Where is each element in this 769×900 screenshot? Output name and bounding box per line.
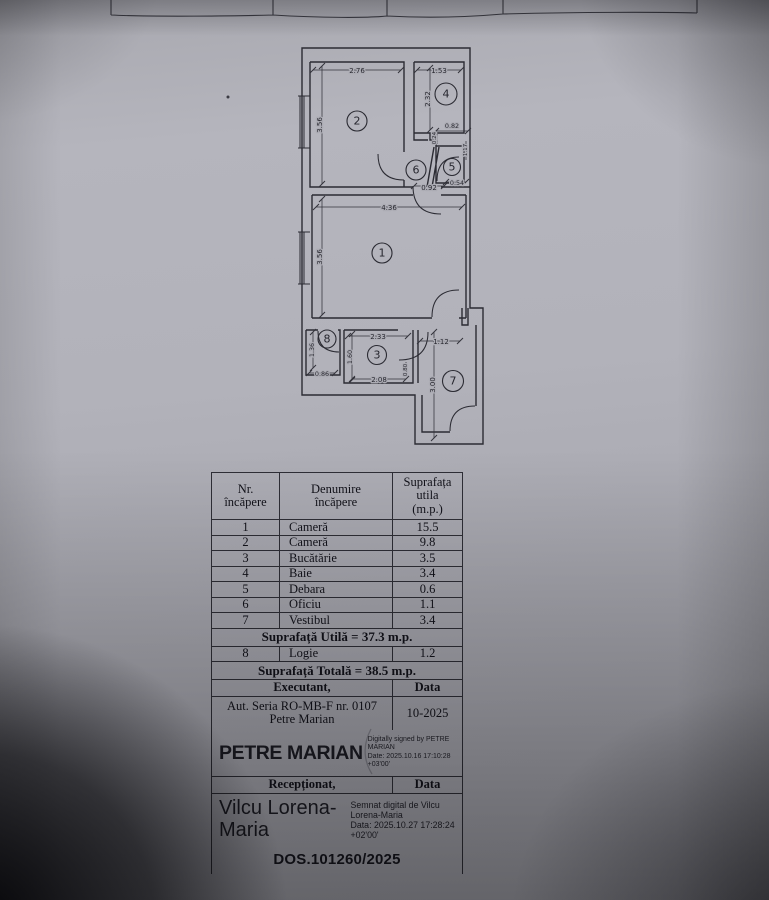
data-label: Data	[393, 777, 463, 794]
dim-label: 1.17	[463, 143, 469, 156]
header-text: utila	[416, 488, 438, 502]
table-row: 7 Vestibul 3.4	[212, 613, 463, 629]
room-number: 5	[449, 161, 456, 174]
dimension-ticks	[306, 63, 471, 441]
cell-nr: 7	[212, 613, 280, 629]
room-number: 6	[413, 164, 420, 177]
cell-name: Logie	[280, 646, 393, 662]
dim-label: 0.24	[432, 131, 438, 144]
dim-label: 2.76	[349, 67, 365, 75]
dim-label: 3.00	[429, 377, 437, 393]
total-totala: Suprafață Totală = 38.5 m.p.	[212, 662, 463, 680]
cell-name: Cameră	[280, 535, 393, 551]
room-number: 8	[324, 333, 331, 346]
table-row: 1 Cameră 15.5	[212, 520, 463, 536]
cell-name: Cameră	[280, 520, 393, 536]
header-nr: Nr. încăpere	[212, 473, 280, 520]
receptionat-signature-cell: Vilcu Lorena- Maria Semnat digital de Vi…	[212, 794, 463, 846]
executant-label: Executant,	[212, 680, 393, 697]
dim-label: 2.32	[424, 91, 432, 107]
header-text: încăpere	[224, 495, 266, 509]
cell-nr: 1	[212, 520, 280, 536]
surface-table: Nr. încăpere Denumire încăpere Suprafața…	[211, 472, 463, 874]
signature-detail-line: Digitally signed by PETRE MARIAN	[368, 736, 450, 752]
dimension-labels: 2.76 1.53 3.56 2.32 0.82 0.24 1.17 0.54 …	[308, 67, 469, 393]
scanned-document-photo: 2.76 1.53 3.56 2.32 0.82 0.24 1.17 0.54 …	[0, 0, 769, 900]
dim-label: 3.56	[316, 249, 324, 265]
door-arcs	[318, 154, 475, 431]
dim-label: 4.36	[381, 204, 397, 212]
cell-name: Vestibul	[280, 613, 393, 629]
plan-walls	[302, 48, 483, 444]
signature-detail-line: Semnat digital de Vilcu	[350, 800, 439, 810]
data-label: Data	[393, 680, 463, 697]
cell-area: 3.4	[393, 613, 463, 629]
cell-nr: 3	[212, 551, 280, 567]
cell-area: 0.6	[393, 582, 463, 598]
signature-detail-line: Lorena-Maria	[350, 810, 402, 820]
room-number: 7	[450, 375, 457, 388]
dossier-cell: DOS.101260/2025	[212, 846, 463, 874]
cell-nr: 6	[212, 597, 280, 613]
header-text: (m.p.)	[412, 502, 443, 516]
executant-header-row: Executant, Data	[212, 680, 463, 697]
dossier-number: DOS.101260/2025	[273, 851, 400, 868]
table-row: 6 Oficiu 1.1	[212, 597, 463, 613]
dim-label: 1.53	[431, 67, 447, 75]
executant-authorization: Aut. Seria RO-MB-F nr. 0107 Petre Marian	[212, 697, 393, 730]
dim-label: 1.36	[308, 343, 316, 357]
cell-nr: 8	[212, 646, 280, 662]
signature-detail-line: Date: 2025.10.16 17:10:28 +03'00'	[368, 753, 451, 769]
header-text: Denumire	[311, 482, 361, 496]
room-label-3: 3	[368, 346, 387, 365]
room-label-7: 7	[443, 371, 464, 392]
receptionat-header-row: Recepționat, Data	[212, 777, 463, 794]
ink-speck	[227, 96, 230, 99]
dim-label: 0.82	[445, 122, 459, 130]
room-label-8: 8	[318, 330, 336, 348]
dim-label: 0.86	[315, 370, 329, 378]
executant-date: 10-2025	[393, 697, 463, 730]
table-row: 8 Logie 1.2	[212, 646, 463, 662]
dim-label: 2.08	[371, 376, 387, 384]
room-label-1: 1	[372, 243, 392, 263]
table-row: 5 Debara 0.6	[212, 582, 463, 598]
receptionat-signature-row: Vilcu Lorena- Maria Semnat digital de Vi…	[212, 794, 463, 846]
executant-signature-row: PETRE MARIAN Digitally signed by PETRE M…	[212, 730, 463, 777]
digital-signature-name: PETRE MARIAN	[219, 743, 363, 763]
cell-name: Baie	[280, 566, 393, 582]
cell-area: 15.5	[393, 520, 463, 536]
table-row: 4 Baie 3.4	[212, 566, 463, 582]
header-denumire: Denumire încăpere	[280, 473, 393, 520]
room-label-5: 5	[444, 159, 461, 176]
dim-label: 1.12	[433, 338, 449, 346]
cell-area: 1.2	[393, 646, 463, 662]
room-label-6: 6	[406, 160, 426, 180]
digital-signature-details: Semnat digital de Vilcu Lorena-Maria Dat…	[350, 800, 454, 840]
room-label-2: 2	[347, 111, 367, 131]
dim-label: 0.92	[421, 184, 437, 192]
signature-name-line: Maria	[219, 819, 269, 841]
subtotal-row: Suprafață Utilă = 37.3 m.p.	[212, 628, 463, 646]
cell-name: Debara	[280, 582, 393, 598]
window-symbols	[298, 96, 310, 284]
executant-name: Petre Marian	[212, 713, 392, 726]
dim-label: 0.54	[450, 179, 464, 187]
room-label-4: 4	[435, 83, 457, 105]
digital-signature-name: Vilcu Lorena- Maria	[219, 798, 336, 841]
digital-signature-details: Digitally signed by PETRE MARIAN Date: 2…	[368, 736, 462, 770]
cell-nr: 4	[212, 566, 280, 582]
table-header-row: Nr. încăpere Denumire încăpere Suprafața…	[212, 473, 463, 520]
executant-signature-cell: PETRE MARIAN Digitally signed by PETRE M…	[212, 730, 463, 777]
cell-area: 3.4	[393, 566, 463, 582]
subtotal-utila: Suprafață Utilă = 37.3 m.p.	[212, 628, 463, 646]
room-number: 4	[443, 88, 450, 101]
cell-area: 9.8	[393, 535, 463, 551]
executant-info-row: Aut. Seria RO-MB-F nr. 0107 Petre Marian…	[212, 697, 463, 730]
dim-label: 2.33	[370, 333, 386, 341]
header-text: încăpere	[315, 495, 357, 509]
signature-detail-line: +02'00'	[350, 830, 378, 840]
dim-label: 0.80	[403, 363, 409, 376]
room-number: 2	[354, 115, 361, 128]
room-number: 3	[374, 349, 381, 362]
header-suprafata: Suprafața utila (m.p.)	[393, 473, 463, 520]
header-text: Nr.	[238, 482, 254, 496]
signature-detail-line: Data: 2025.10.27 17:28:24	[350, 820, 454, 830]
cell-nr: 5	[212, 582, 280, 598]
cell-name: Bucătărie	[280, 551, 393, 567]
signature-name-line: Vilcu Lorena-	[219, 797, 336, 819]
room-labels: 1 2 3 4 5 6 7	[318, 83, 464, 392]
cell-name: Oficiu	[280, 597, 393, 613]
cell-area: 3.5	[393, 551, 463, 567]
dimension-lines	[309, 66, 468, 438]
dim-label: 1.60	[346, 350, 354, 364]
top-table-fragment	[111, 0, 697, 17]
room-number: 1	[379, 247, 386, 260]
dossier-row: DOS.101260/2025	[212, 846, 463, 874]
total-row: Suprafață Totală = 38.5 m.p.	[212, 662, 463, 680]
cell-nr: 2	[212, 535, 280, 551]
table-row: 3 Bucătărie 3.5	[212, 551, 463, 567]
table-row: 2 Cameră 9.8	[212, 535, 463, 551]
cell-area: 1.1	[393, 597, 463, 613]
header-text: Suprafața	[404, 475, 452, 489]
dim-label: 3.56	[316, 117, 324, 133]
receptionat-label: Recepționat,	[212, 777, 393, 794]
